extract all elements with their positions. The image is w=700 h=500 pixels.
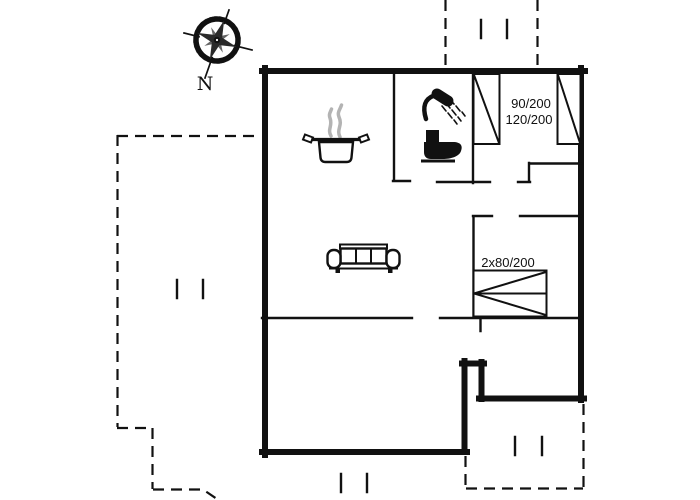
opening-mark-top <box>481 20 507 38</box>
toilet-silhouette <box>421 130 462 163</box>
sofa-feet <box>336 269 393 273</box>
compass-hub-dot <box>216 39 218 41</box>
sofa-seat <box>341 249 387 264</box>
compass-rose-icon: N <box>184 10 252 95</box>
steam-icon <box>329 105 341 137</box>
sofa-icon <box>328 245 400 274</box>
shower-icon <box>424 94 465 124</box>
shower-head <box>437 94 448 101</box>
terrace-left-outline <box>117 135 261 500</box>
bed-size-label-120: 120/200 <box>506 112 553 127</box>
north-label: N <box>197 73 214 95</box>
bed-size-label-bunk: 2x80/200 <box>481 255 535 270</box>
opening-mark-left <box>177 280 203 298</box>
bed-120x200 <box>558 74 581 144</box>
toilet-icon <box>421 130 462 163</box>
bed-90x200 <box>474 74 500 144</box>
sofa-armrest-left <box>328 250 341 268</box>
bed-size-label-90: 90/200 <box>511 96 551 111</box>
shower-arm <box>424 96 434 120</box>
floor-plan-drawing: 90/200 120/200 2x80/200 <box>0 0 700 500</box>
bunk-beds-2x80x200 <box>474 271 547 317</box>
sofa-armrest-right <box>387 250 400 268</box>
cooking-pot-icon <box>303 105 369 162</box>
terrace-notch-outline <box>466 404 584 489</box>
terrace-top-outline <box>446 0 538 66</box>
pot-body <box>319 142 353 162</box>
opening-mark-notch <box>515 437 542 455</box>
floor-plan-canvas: 90/200 120/200 2x80/200 <box>0 0 700 500</box>
opening-mark-bottom <box>341 474 367 492</box>
